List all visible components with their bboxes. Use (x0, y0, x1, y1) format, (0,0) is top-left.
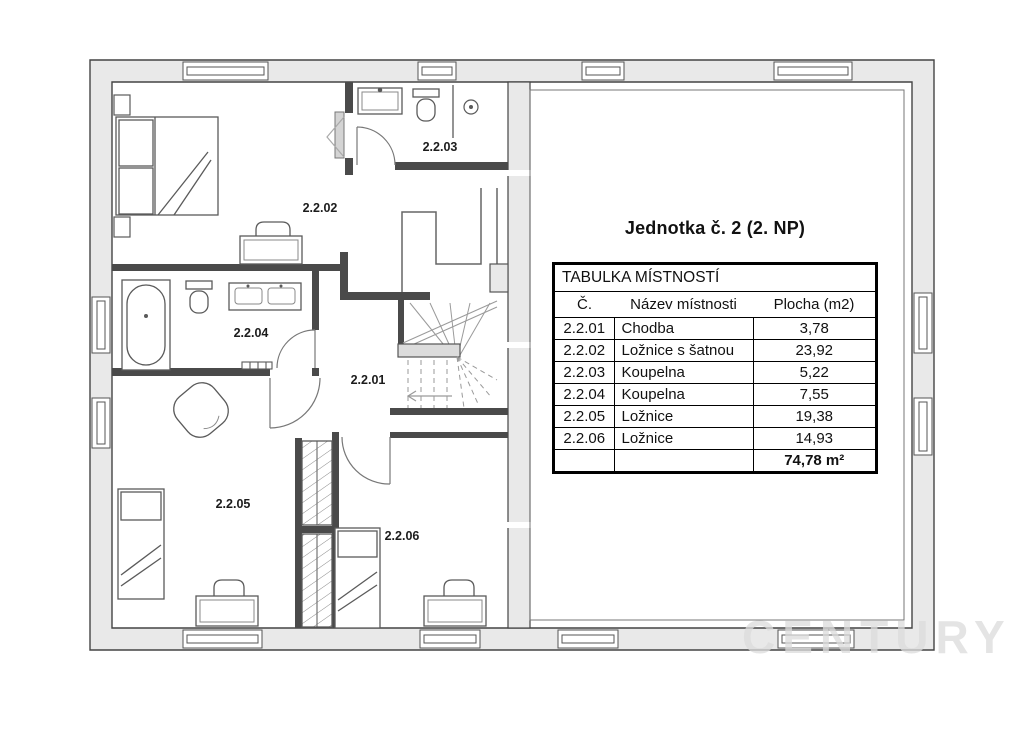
wardrobe-icon (302, 441, 332, 525)
room-name: Chodba (614, 318, 753, 340)
toilet-icon (413, 89, 439, 121)
room-area: 3,78 (753, 318, 875, 340)
toilet-icon (186, 281, 212, 313)
room-label-2-2-01: 2.2.01 (351, 373, 386, 387)
table-row: 2.2.02 Ložnice s šatnou 23,92 (555, 340, 875, 362)
desk-chair (424, 580, 486, 626)
wardrobe-icon (302, 534, 332, 627)
sliding-door-icon (327, 112, 344, 158)
table-total-row: 74,78 m² (555, 450, 875, 472)
table-row: 2.2.03 Koupelna 5,22 (555, 362, 875, 384)
stair-direction-arrow (408, 391, 452, 401)
room-name: Ložnice (614, 406, 753, 428)
col-header-number: Č. (555, 292, 614, 318)
nightstand (114, 217, 130, 237)
room-table: TABULKA MÍSTNOSTÍ Č. Název místnosti Plo… (552, 262, 878, 474)
room-area: 7,55 (753, 384, 875, 406)
room-no: 2.2.01 (555, 318, 614, 340)
shaft-nub (490, 264, 508, 292)
floorplan-page: 2.2.01 2.2.02 2.2.03 2.2.04 2.2.05 2.2.0… (0, 0, 1024, 733)
double-bed (116, 117, 218, 215)
room-no: 2.2.06 (555, 428, 614, 450)
room-label-2-2-06: 2.2.06 (385, 529, 420, 543)
desk-chair (240, 222, 302, 264)
table-row: 2.2.05 Ložnice 19,38 (555, 406, 875, 428)
room-label-2-2-03: 2.2.03 (423, 140, 458, 154)
bathtub-icon (122, 280, 170, 370)
room-area: 23,92 (753, 340, 875, 362)
table-caption: TABULKA MÍSTNOSTÍ (555, 265, 875, 292)
double-sink-vanity (229, 283, 301, 310)
room-name: Koupelna (614, 362, 753, 384)
wall-break (506, 522, 532, 528)
shaft-outline (402, 188, 497, 292)
room-name: Ložnice (614, 428, 753, 450)
room-no: 2.2.04 (555, 384, 614, 406)
room-label-2-2-05: 2.2.05 (216, 497, 251, 511)
party-wall (508, 82, 530, 628)
staircase (398, 300, 497, 408)
sink-icon (358, 88, 402, 114)
wall-break (506, 342, 532, 348)
armchair-icon (167, 376, 235, 444)
nightstand (114, 95, 130, 115)
total-area: 74,78 m² (753, 450, 875, 472)
table-row: 2.2.01 Chodba 3,78 (555, 318, 875, 340)
room-area: 14,93 (753, 428, 875, 450)
single-bed (118, 489, 164, 599)
room-no: 2.2.03 (555, 362, 614, 384)
room-label-2-2-04: 2.2.04 (234, 326, 269, 340)
room-area: 19,38 (753, 406, 875, 428)
room-label-2-2-02: 2.2.02 (303, 201, 338, 215)
desk-chair (196, 580, 258, 626)
room-area: 5,22 (753, 362, 875, 384)
room-name: Ložnice s šatnou (614, 340, 753, 362)
radiator-icon (242, 362, 272, 369)
single-bed (335, 528, 380, 628)
col-header-name: Název místnosti (614, 292, 753, 318)
room-no: 2.2.02 (555, 340, 614, 362)
unit-title: Jednotka č. 2 (2. NP) (552, 218, 878, 239)
room-no: 2.2.05 (555, 406, 614, 428)
floor-drain-icon (464, 100, 478, 114)
table-row: 2.2.06 Ložnice 14,93 (555, 428, 875, 450)
col-header-area: Plocha (m2) (753, 292, 875, 318)
table-row: 2.2.04 Koupelna 7,55 (555, 384, 875, 406)
room-name: Koupelna (614, 384, 753, 406)
wall-break (506, 170, 532, 176)
